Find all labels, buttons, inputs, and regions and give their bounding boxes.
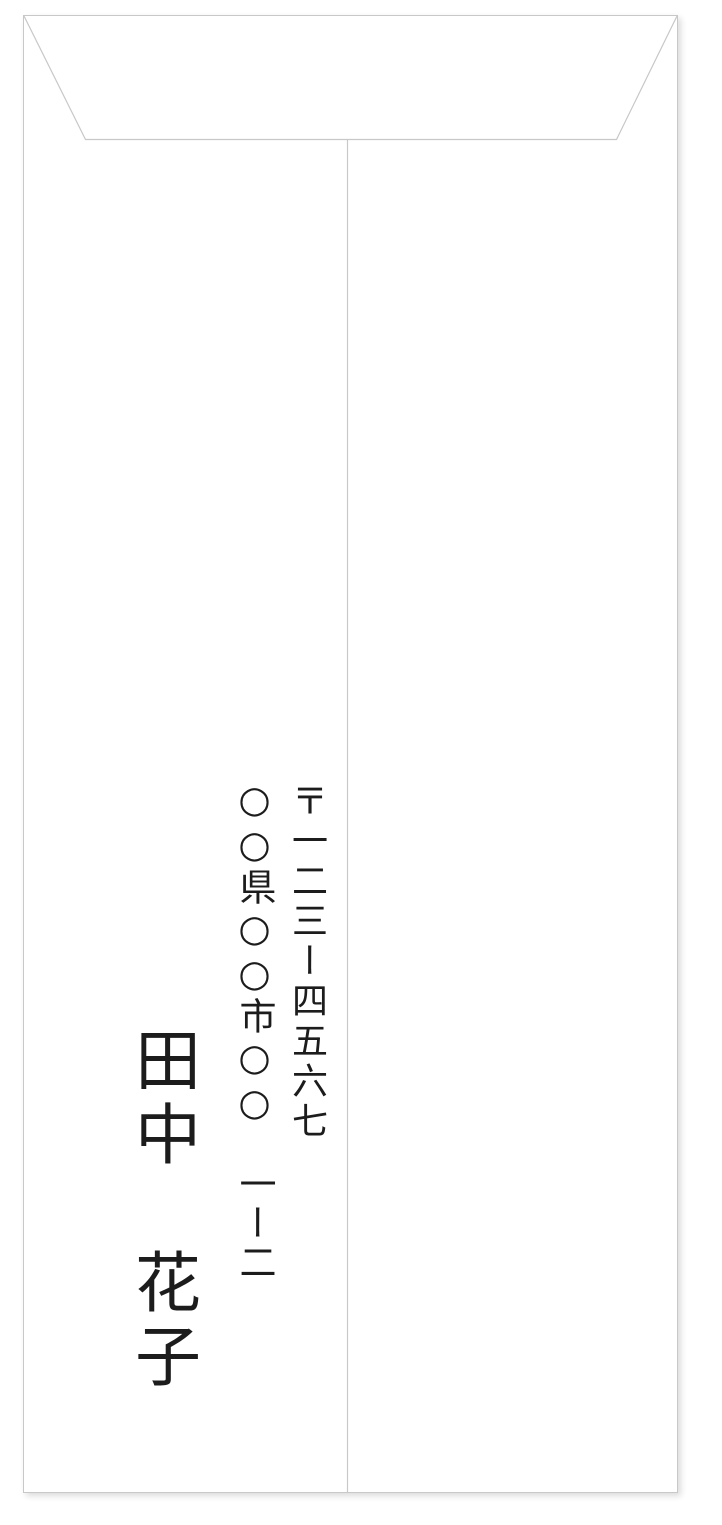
sender-name: 田中 花子	[129, 1026, 195, 1396]
sender-postal-code: 〒一二三ー四五六七	[288, 782, 324, 1142]
flap-fold-line	[24, 16, 677, 140]
envelope-back: 〒一二三ー四五六七 ○○県○○市○○ 一ー二 田中 花子	[23, 15, 678, 1493]
sender-address: ○○県○○市○○ 一ー二	[236, 778, 273, 1282]
envelope-fold-lines	[24, 16, 677, 1492]
